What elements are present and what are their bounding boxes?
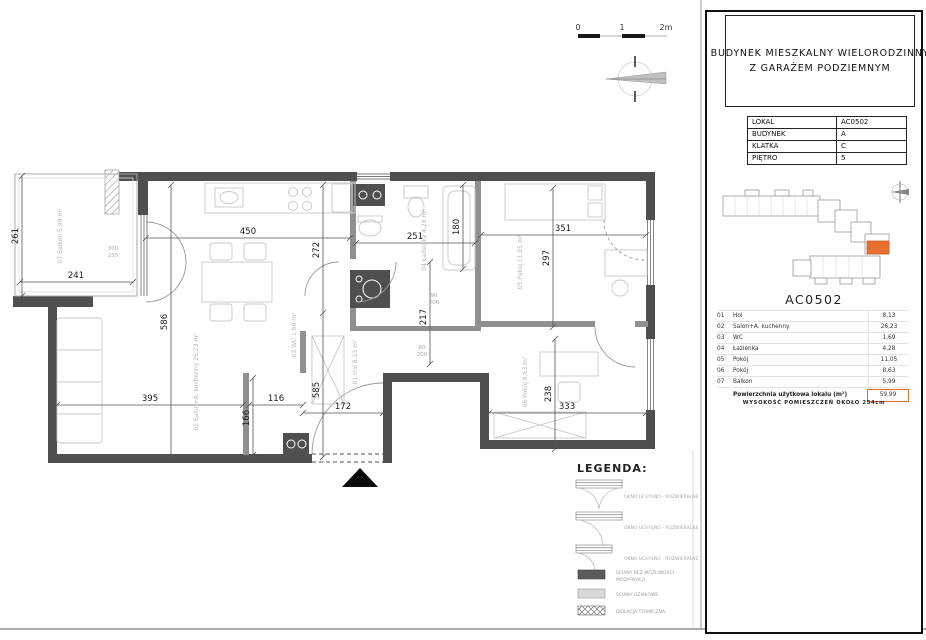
project-title-line2: Z GARAŻEM PODZIEMNYM	[750, 63, 891, 74]
room-number: 05	[717, 357, 733, 363]
room-area: 11,05	[868, 355, 909, 365]
room-row: 03 WC 1,69	[717, 333, 909, 344]
partition-walls	[243, 181, 648, 455]
room-name: Balkon	[733, 379, 868, 385]
legend-partition-label: ŚCIANY DZIAŁOWE	[616, 591, 658, 598]
kitchen-counter	[205, 183, 355, 213]
total-area-label: Powierzchnia użytkowa lokalu (m²)	[717, 392, 867, 398]
room-area: 8,13	[868, 311, 909, 321]
room6-door-arc	[595, 327, 635, 367]
room5-door-arc	[604, 220, 644, 260]
legend-insulation-label: IZOLACJA TERMICZNA	[616, 609, 666, 615]
info-label: BUDYNEK	[748, 129, 837, 140]
info-label: PIĘTRO	[748, 153, 837, 164]
info-value: AC0502	[837, 117, 906, 128]
mark-window-height: 235	[108, 253, 119, 259]
dim-116: 116	[268, 394, 284, 404]
room-area: 8,63	[868, 366, 909, 376]
dim-450: 450	[240, 227, 256, 237]
info-value: 5	[837, 153, 906, 164]
sofa	[57, 318, 102, 443]
dim-395: 395	[142, 394, 158, 404]
info-value: C	[837, 141, 906, 152]
dim-351: 351	[555, 224, 571, 234]
room-label-balkon: 07 Balkon 5,99 m²	[57, 208, 64, 264]
dim-272: 272	[312, 242, 322, 258]
unit-code-heading: AC0502	[707, 292, 921, 307]
legend: LEGENDA: OKNO UCHYLNO - ROZWIERALNE OKNO…	[576, 462, 699, 615]
scale-bar: 0 1 2m	[575, 23, 672, 38]
balcony-door-arc-top	[146, 222, 186, 262]
ceiling-height-note: WYSOKOŚĆ POMIESZCZEŃ OKOŁO 254cm	[707, 400, 921, 406]
legend-swatch-insulation	[578, 606, 605, 615]
dim-297: 297	[542, 250, 552, 266]
legend-solid-wall-label-2: MODYFIKACJI	[616, 577, 645, 583]
room-area: 5,99	[868, 377, 909, 387]
entrance	[312, 454, 383, 487]
dim-172: 172	[335, 402, 351, 412]
room-name: WC	[733, 335, 868, 341]
mark-door1-height: 200	[429, 300, 440, 306]
legend-window-label-3: OKNO UCHYLNO - ROZWIERALNE	[624, 556, 699, 562]
room-label-lazienka: 04 Łazienka 4,28 m²	[421, 209, 428, 271]
legend-window-label-2: OKNO UCHYLNO - ROZWIERALNE	[624, 525, 699, 531]
room-number: 06	[717, 368, 733, 374]
fridge	[332, 184, 352, 212]
room-row: 04 Łazienka 4,28	[717, 344, 909, 355]
room-number: 02	[717, 324, 733, 330]
room-area: 4,28	[868, 344, 909, 354]
scale-tick-0: 0	[575, 23, 580, 32]
legend-window-label-1: OKNO UCHYLNO - ROZWIERALNE	[624, 494, 699, 500]
door-swings	[146, 220, 644, 454]
room-row: 01 Hol 8,13	[717, 310, 909, 322]
kitchen-sink	[215, 188, 243, 207]
legend-window-symbol-2	[576, 512, 622, 545]
dimension-lines	[17, 173, 649, 460]
desk-room5	[605, 250, 647, 276]
room-name: Hol	[733, 313, 868, 319]
bed	[505, 184, 605, 220]
info-label: KLATKA	[748, 141, 837, 152]
room-name: Pokój	[733, 368, 868, 374]
dim-180: 180	[452, 219, 462, 235]
key-plan	[715, 178, 913, 290]
room-number: 07	[717, 379, 733, 385]
room-area: 26,23	[868, 322, 909, 332]
room-labels: 07 Balkon 5,99 m² 02 Salon+A. kuchenny 2…	[57, 208, 529, 431]
room-number: 01	[717, 313, 733, 319]
room-area-table: 01 Hol 8,13 02 Salon+A. kuchenny 26,23 0…	[717, 310, 909, 402]
keyplan-north-icon	[891, 181, 909, 203]
legend-solid-wall-label-1: ŚCIANY BEZ MOŻLIWOŚCI	[616, 569, 674, 576]
dim-238: 238	[544, 386, 554, 402]
info-row-klatka: KLATKA C	[748, 140, 906, 152]
room-label-salon: 02 Salon+A. kuchenny 26,23 m²	[193, 333, 200, 431]
toilet	[404, 186, 428, 198]
north-arrow-icon	[606, 56, 666, 102]
installation-shafts	[283, 184, 390, 455]
mark-window-width: 300	[108, 246, 119, 252]
dim-166: 166	[242, 410, 252, 426]
washbasin	[358, 216, 382, 222]
wc-door-arc	[305, 262, 339, 296]
info-row-lokal: LOKAL AC0502	[748, 117, 906, 128]
legend-swatch-solid-wall	[578, 570, 605, 579]
legend-window-symbol-1	[576, 480, 622, 509]
entrance-marker-icon	[342, 468, 378, 487]
room-label-wc: 03 WC 1,69 m²	[291, 312, 298, 358]
dining-table	[202, 262, 272, 302]
mark-door1-width: 90	[431, 293, 438, 299]
room-number: 03	[717, 335, 733, 341]
title-panel: BUDYNEK MIESZKALNY WIELORODZINNY Z GARAŻ…	[705, 10, 923, 634]
dim-217: 217	[419, 309, 429, 325]
mark-door2-width: 80	[419, 345, 426, 351]
info-value: A	[837, 129, 906, 140]
room-name: Łazienka	[733, 346, 868, 352]
project-title-line1: BUDYNEK MIESZKALNY WIELORODZINNY	[711, 48, 926, 59]
project-title-box: BUDYNEK MIESZKALNY WIELORODZINNY Z GARAŻ…	[725, 15, 915, 107]
dim-261: 261	[11, 228, 21, 244]
mark-door2-height: 200	[417, 352, 428, 358]
dim-241: 241	[68, 271, 84, 281]
room-row: 07 Balkon 5,99	[717, 377, 909, 388]
room-label-pokoj5: 05 Pokój 11,05 m²	[517, 234, 524, 289]
legend-title: LEGENDA:	[577, 462, 648, 475]
room-name: Salon+A. kuchenny	[733, 324, 868, 330]
insulation-block	[105, 170, 119, 214]
room-number: 04	[717, 346, 733, 352]
room-label-pokoj6: 06 Pokój 8,63 m²	[522, 356, 529, 407]
dim-333: 333	[559, 402, 575, 412]
desk-room6	[540, 352, 598, 376]
floorplan-sheet: 0 1 2m	[0, 0, 926, 640]
info-row-pietro: PIĘTRO 5	[748, 152, 906, 164]
stove-burner	[289, 188, 298, 197]
room-name: Pokój	[733, 357, 868, 363]
dim-586: 586	[160, 314, 170, 330]
scale-tick-1: 1	[619, 23, 624, 32]
highlighted-unit	[867, 241, 889, 254]
info-row-budynek: BUDYNEK A	[748, 128, 906, 140]
room-row: 06 Pokój 8,63	[717, 366, 909, 377]
legend-swatch-partition-wall	[578, 589, 605, 598]
info-label: LOKAL	[748, 117, 837, 128]
scale-tick-2m: 2m	[660, 23, 673, 32]
room-row: 02 Salon+A. kuchenny 26,23	[717, 322, 909, 333]
legend-window-symbol-3	[576, 545, 612, 571]
room-area: 1,69	[868, 333, 909, 343]
room-label-hol: 01 Hol 8,13 m²	[352, 339, 359, 384]
dim-585: 585	[312, 382, 322, 398]
room-row: 05 Pokój 11,05	[717, 355, 909, 366]
unit-info-table: LOKAL AC0502 BUDYNEK A KLATKA C PIĘTRO 5	[747, 116, 907, 165]
balcony-door-arc-bottom	[146, 262, 186, 302]
